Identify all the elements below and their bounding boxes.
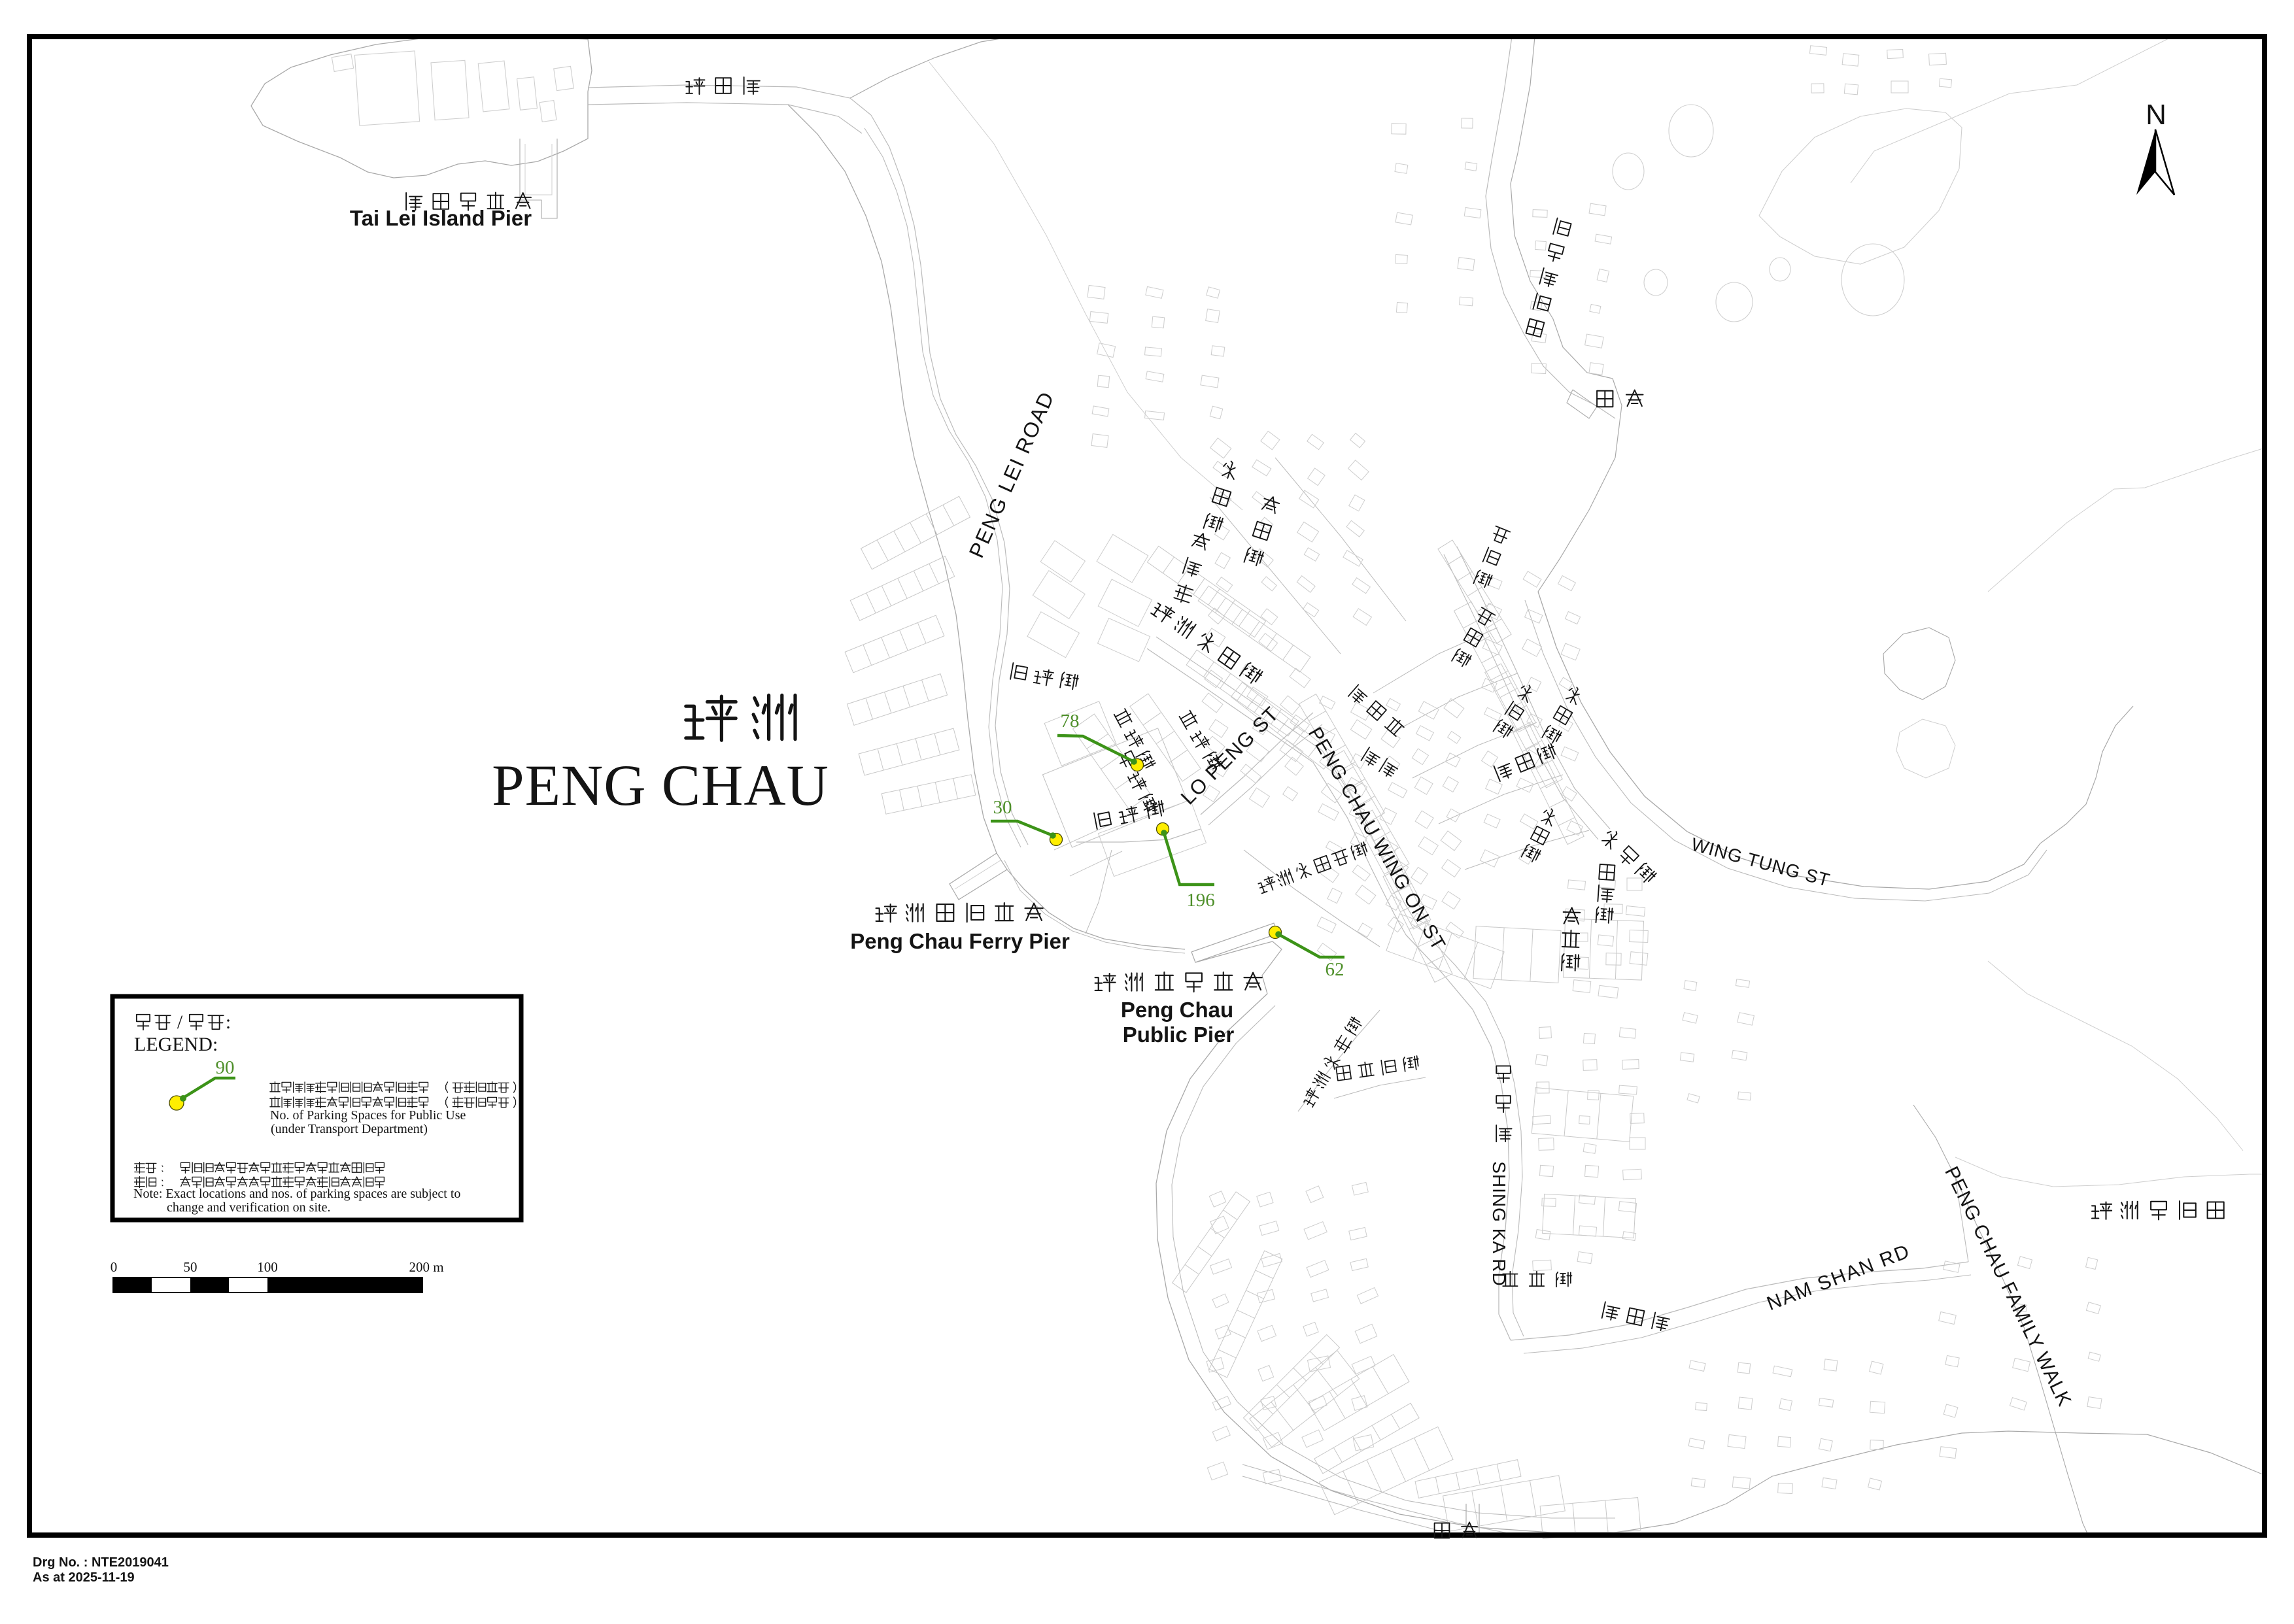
svg-text:0: 0 xyxy=(111,1259,118,1275)
svg-text:100: 100 xyxy=(257,1259,278,1275)
svg-text:(under Transport Department): (under Transport Department) xyxy=(271,1122,428,1136)
svg-text:Peng Chau: Peng Chau xyxy=(1121,998,1233,1022)
svg-text:LEGEND:: LEGEND: xyxy=(134,1034,218,1055)
svg-text:SHING KA RD: SHING KA RD xyxy=(1489,1161,1509,1286)
svg-text:Tai Lei Island Pier: Tai Lei Island Pier xyxy=(350,206,532,230)
svg-text:196: 196 xyxy=(1186,890,1215,911)
svg-text:Note: Exact locations and nos.: Note: Exact locations and nos. of parkin… xyxy=(133,1187,460,1201)
svg-text:N: N xyxy=(2146,99,2166,131)
svg-text:90: 90 xyxy=(216,1057,235,1078)
svg-text:No. of Parking Spaces for Publ: No. of Parking Spaces for Public Use xyxy=(270,1108,466,1123)
svg-text:30: 30 xyxy=(993,797,1012,818)
svg-text::: : xyxy=(226,1011,231,1033)
svg-text:200 m: 200 m xyxy=(409,1259,443,1275)
svg-text:change and verification on sit: change and verification on site. xyxy=(167,1200,330,1215)
svg-text:Drg No. : NTE2019041: Drg No. : NTE2019041 xyxy=(33,1555,169,1570)
svg-text:62: 62 xyxy=(1326,959,1344,980)
svg-text:78: 78 xyxy=(1061,711,1080,732)
svg-text:Public Pier: Public Pier xyxy=(1123,1023,1235,1047)
svg-text:/: / xyxy=(177,1011,183,1033)
svg-text:Peng Chau Ferry Pier: Peng Chau Ferry Pier xyxy=(850,929,1070,953)
svg-text:50: 50 xyxy=(184,1259,197,1275)
svg-text:As at 2025-11-19: As at 2025-11-19 xyxy=(33,1570,135,1585)
svg-text:PENG CHAU: PENG CHAU xyxy=(492,754,829,818)
